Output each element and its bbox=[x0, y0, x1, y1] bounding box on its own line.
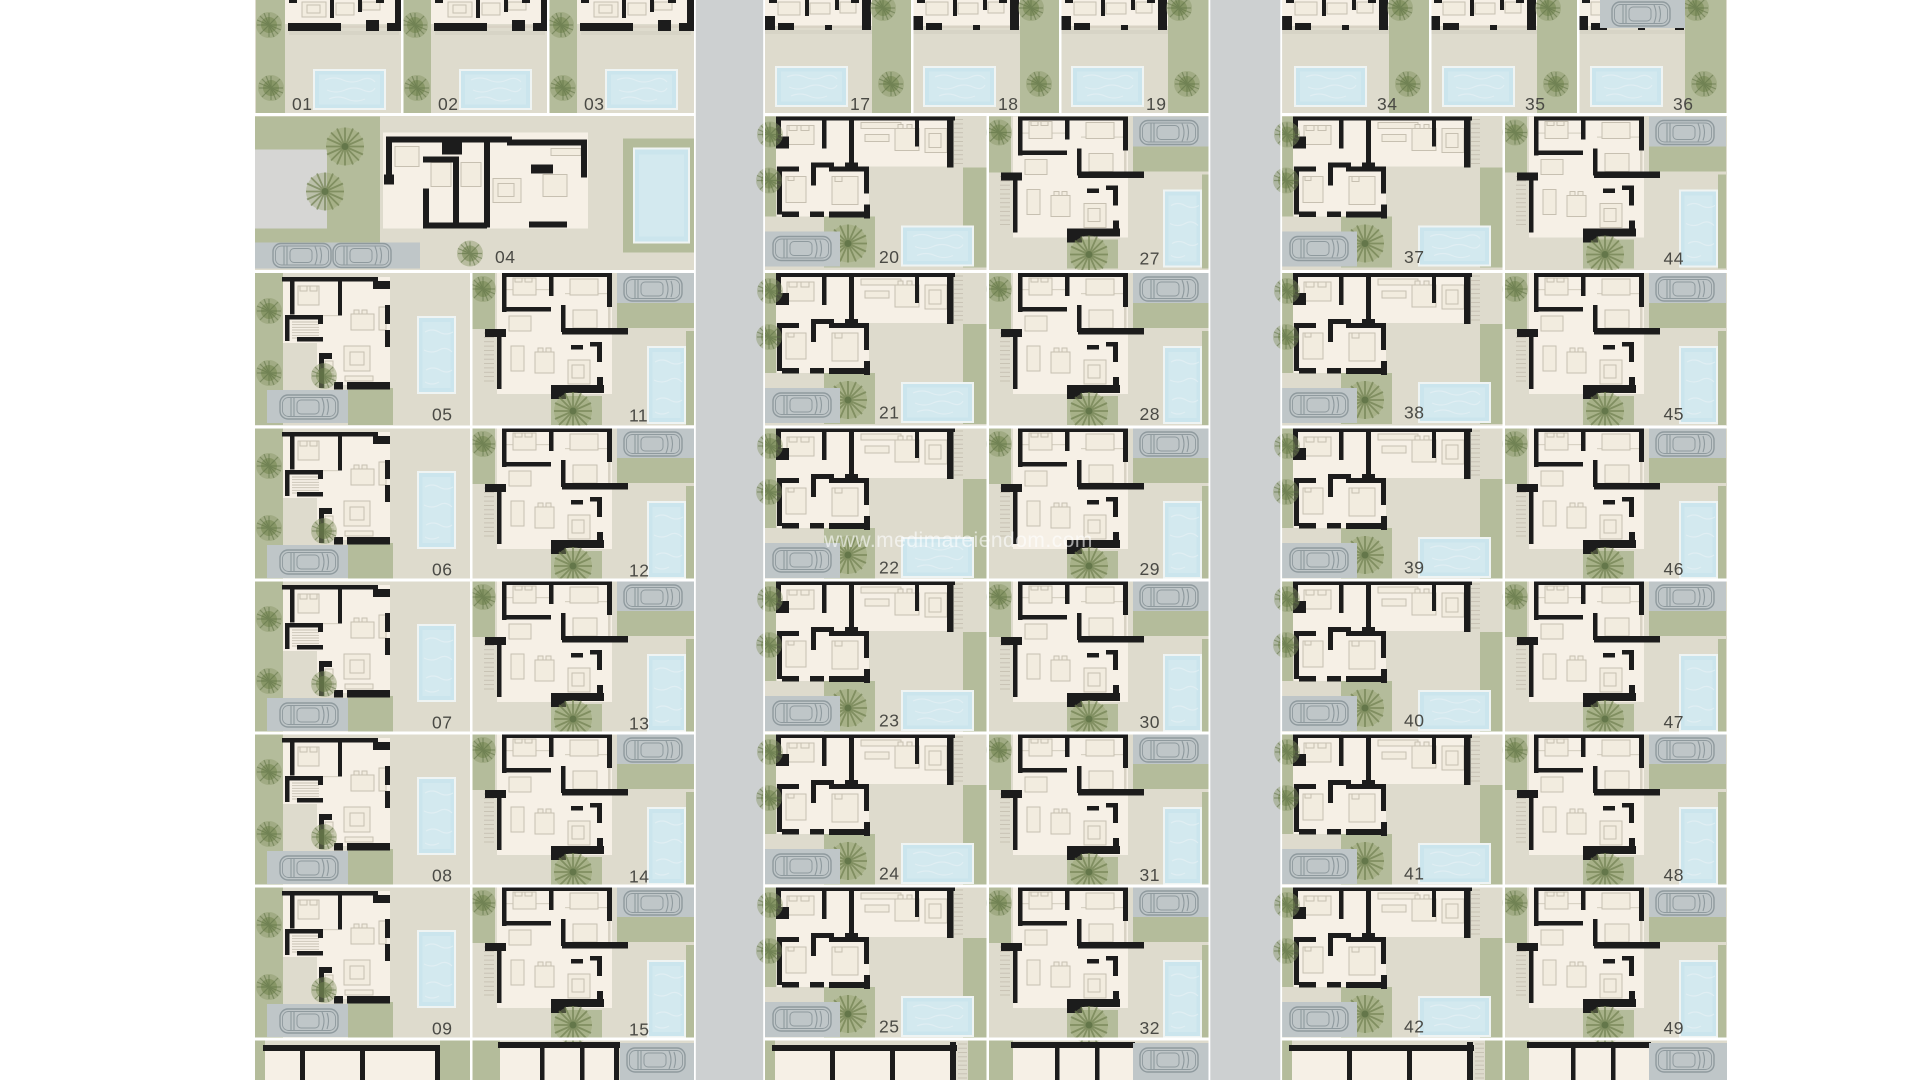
svg-text:38: 38 bbox=[1404, 403, 1424, 423]
svg-text:18: 18 bbox=[998, 94, 1018, 114]
svg-text:15: 15 bbox=[629, 1020, 649, 1040]
svg-text:12: 12 bbox=[629, 561, 649, 581]
svg-text:49: 49 bbox=[1664, 1018, 1684, 1038]
svg-text:06: 06 bbox=[432, 560, 452, 580]
svg-text:05: 05 bbox=[432, 405, 452, 425]
svg-text:14: 14 bbox=[629, 867, 649, 887]
svg-text:48: 48 bbox=[1664, 865, 1684, 885]
svg-text:41: 41 bbox=[1404, 864, 1424, 884]
svg-text:44: 44 bbox=[1664, 249, 1684, 269]
svg-text:34: 34 bbox=[1377, 94, 1397, 114]
svg-text:23: 23 bbox=[879, 711, 899, 731]
svg-text:09: 09 bbox=[432, 1019, 452, 1039]
svg-text:www.medimareiendom.com: www.medimareiendom.com bbox=[823, 529, 1093, 552]
svg-text:45: 45 bbox=[1664, 404, 1684, 424]
svg-text:03: 03 bbox=[584, 94, 604, 114]
svg-text:25: 25 bbox=[879, 1017, 899, 1037]
svg-text:11: 11 bbox=[629, 406, 648, 426]
svg-text:47: 47 bbox=[1664, 712, 1684, 732]
svg-text:04: 04 bbox=[495, 247, 515, 267]
svg-text:37: 37 bbox=[1404, 247, 1424, 267]
svg-text:02: 02 bbox=[438, 94, 458, 114]
svg-text:30: 30 bbox=[1140, 712, 1160, 732]
svg-text:21: 21 bbox=[879, 403, 899, 423]
svg-text:40: 40 bbox=[1404, 711, 1424, 731]
svg-text:07: 07 bbox=[432, 713, 452, 733]
svg-text:31: 31 bbox=[1140, 865, 1160, 885]
svg-text:46: 46 bbox=[1664, 559, 1684, 579]
svg-text:19: 19 bbox=[1146, 94, 1166, 114]
svg-text:28: 28 bbox=[1140, 404, 1160, 424]
svg-text:27: 27 bbox=[1140, 249, 1160, 269]
svg-text:42: 42 bbox=[1404, 1017, 1424, 1037]
svg-text:17: 17 bbox=[850, 94, 870, 114]
svg-text:39: 39 bbox=[1404, 558, 1424, 578]
svg-text:35: 35 bbox=[1525, 94, 1545, 114]
svg-text:08: 08 bbox=[432, 866, 452, 886]
svg-text:32: 32 bbox=[1140, 1018, 1160, 1038]
svg-text:24: 24 bbox=[879, 864, 899, 884]
svg-text:20: 20 bbox=[879, 247, 899, 267]
svg-text:22: 22 bbox=[879, 558, 899, 578]
svg-text:01: 01 bbox=[292, 94, 312, 114]
svg-text:29: 29 bbox=[1140, 559, 1160, 579]
svg-text:13: 13 bbox=[629, 714, 649, 734]
svg-text:36: 36 bbox=[1673, 94, 1693, 114]
